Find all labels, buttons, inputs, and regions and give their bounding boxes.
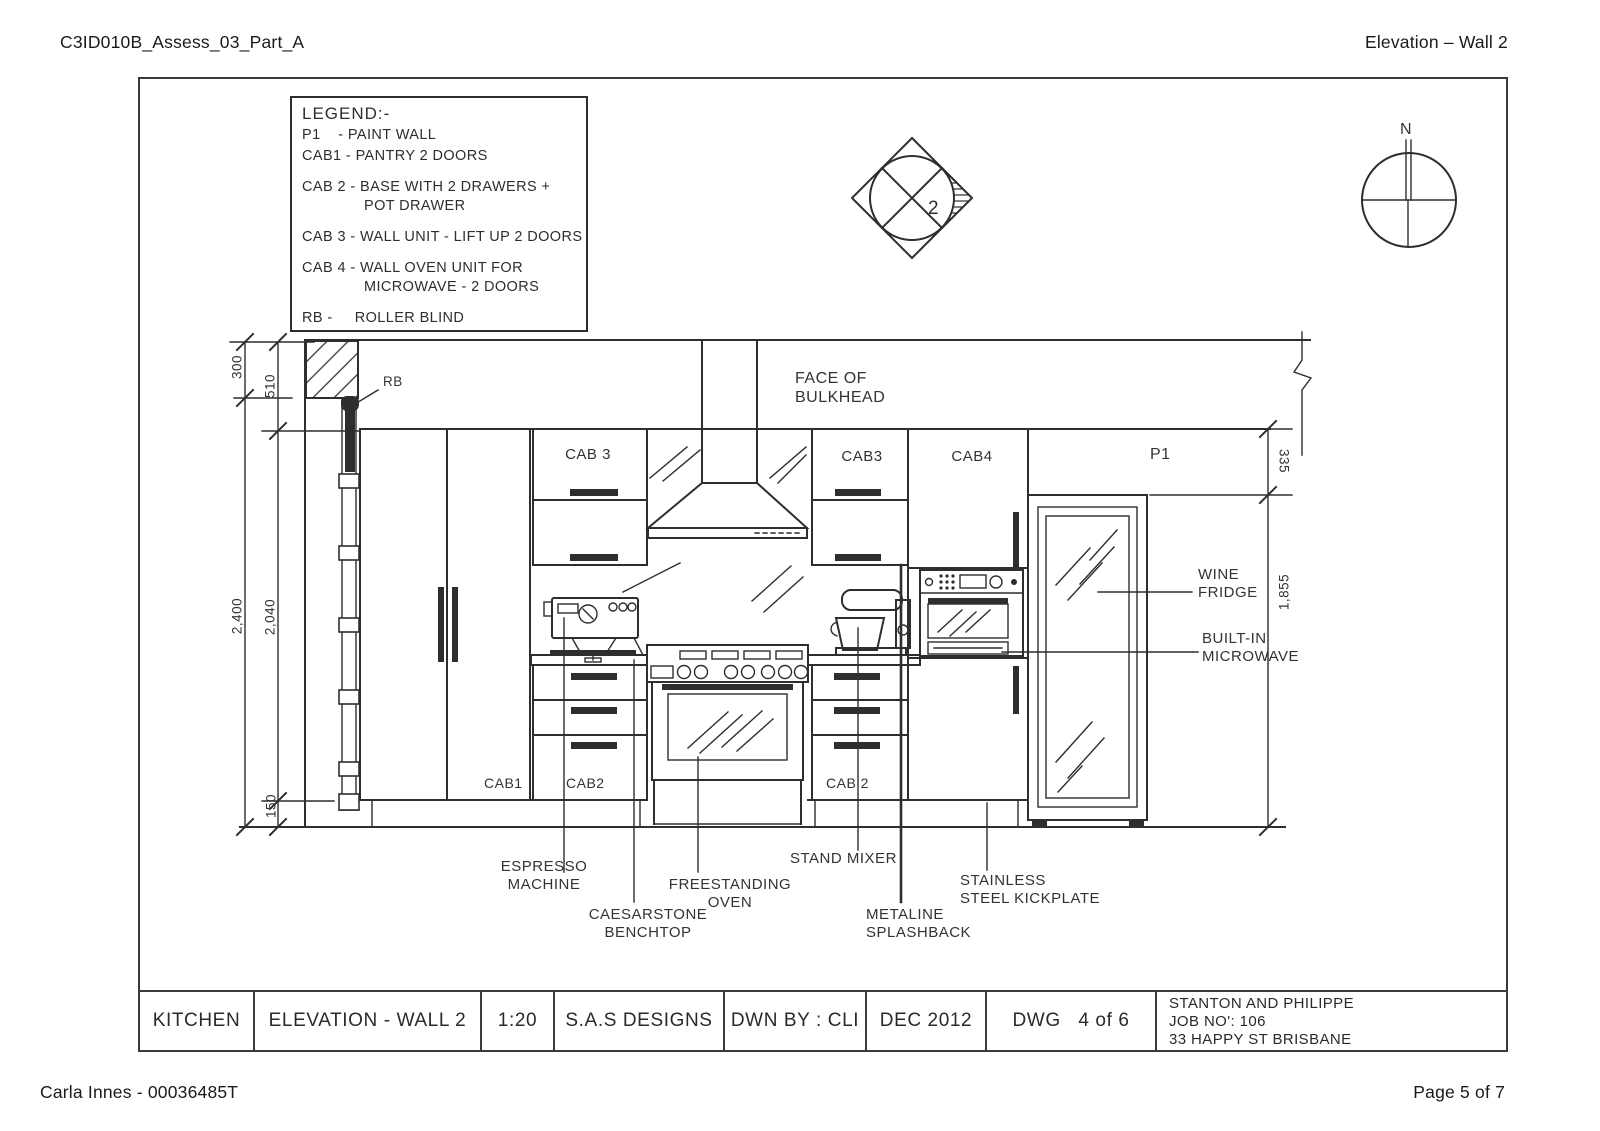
north-label: N [1400, 121, 1412, 140]
section-marker-number: 2 [928, 198, 939, 220]
dim-2040: 2,040 [263, 599, 278, 635]
window-roller-blind [339, 396, 359, 810]
dim-2400: 2,400 [230, 598, 245, 634]
elevation-linework [0, 0, 1600, 1131]
espresso-machine [544, 598, 643, 662]
label-stand-mixer: STAND MIXER [790, 850, 897, 868]
rangehood [648, 340, 807, 538]
label-cab2-right: CAB 2 [826, 775, 869, 792]
label-metaline-splashback: METALINE SPLASHBACK [866, 906, 971, 941]
dim-1855: 1,855 [1277, 574, 1292, 610]
wine-fridge [1028, 495, 1147, 827]
north-arrow [1362, 140, 1456, 247]
label-espresso-machine: ESPRESSO MACHINE [498, 858, 590, 893]
splashback-glass-marks [623, 447, 806, 612]
title-block: KITCHEN ELEVATION - WALL 2 1:20 S.A.S DE… [138, 990, 1508, 1052]
legend-entry-cab3: CAB 3 - WALL UNIT - LIFT UP 2 DOORS [302, 228, 586, 247]
label-built-in-microwave: BUILT-IN MICROWAVE [1202, 630, 1299, 665]
label-cab3-left: CAB 3 [556, 446, 620, 464]
dim-300: 300 [230, 355, 245, 379]
tb-client: STANTON AND PHILIPPE [1169, 995, 1354, 1013]
drawing-sheet: C3ID010B_Assess_03_Part_A Elevation – Wa… [0, 0, 1600, 1131]
dim-510: 510 [263, 374, 278, 398]
label-p1: P1 [1150, 446, 1171, 465]
stand-mixer [831, 590, 910, 655]
tb-date: DEC 2012 [867, 992, 987, 1050]
section-marker [852, 138, 972, 258]
legend-entry-rb: RB - ROLLER BLIND [302, 309, 586, 328]
cab4-microwave-tower [908, 429, 1028, 800]
tb-drawn-by: DWN BY : CLI [725, 992, 867, 1050]
tb-room: KITCHEN [140, 992, 255, 1050]
legend-entry-cab1: CAB1 - PANTRY 2 DOORS [302, 147, 586, 166]
label-cab3-right: CAB3 [834, 448, 890, 466]
label-face-of-bulkhead: FACE OF BULKHEAD [795, 370, 885, 408]
label-cab4: CAB4 [944, 448, 1000, 466]
tb-firm: S.A.S DESIGNS [555, 992, 725, 1050]
dim-150: 150 [264, 794, 279, 818]
legend-title: LEGEND:- [302, 104, 586, 124]
pantry-cab1 [360, 429, 530, 800]
legend-entry-cab4: CAB 4 - WALL OVEN UNIT FOR MICROWAVE - 2… [302, 259, 586, 297]
label-cab1: CAB1 [484, 775, 523, 792]
freestanding-oven [647, 645, 808, 824]
label-stainless-kickplate: STAINLESS STEEL KICKPLATE [960, 872, 1100, 907]
legend-entry-cab2: CAB 2 - BASE WITH 2 DRAWERS + POT DRAWER [302, 178, 586, 216]
legend-entry-p1: P1 - PAINT WALL [302, 126, 586, 145]
dim-335: 335 [1277, 449, 1292, 473]
legend-box: LEGEND:- P1 - PAINT WALL CAB1 - PANTRY 2… [290, 96, 588, 332]
tb-view: ELEVATION - WALL 2 [255, 992, 482, 1050]
tb-job-no: JOB NO': 106 [1169, 1013, 1266, 1031]
tb-sheet: DWG 4 of 6 [987, 992, 1157, 1050]
label-cab2-left: CAB2 [566, 775, 605, 792]
label-wine-fridge: WINE FRIDGE [1198, 566, 1258, 601]
tb-project: STANTON AND PHILIPPE JOB NO': 106 33 HAP… [1157, 992, 1506, 1050]
tb-scale: 1:20 [482, 992, 555, 1050]
label-freestanding-oven: FREESTANDING OVEN [664, 876, 796, 911]
label-roller-blind: RB [383, 374, 403, 390]
tb-address: 33 HAPPY ST BRISBANE [1169, 1031, 1352, 1049]
